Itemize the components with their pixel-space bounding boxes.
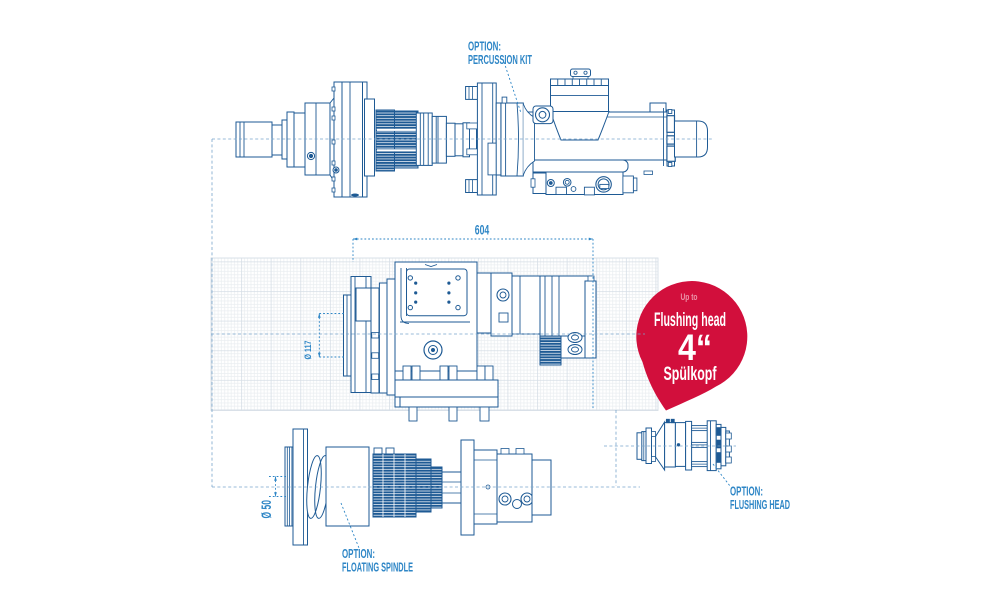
svg-text:Ø 50: Ø 50 xyxy=(259,500,274,519)
svg-text:604: 604 xyxy=(475,222,490,238)
svg-text:FLOATING SPINDLE: FLOATING SPINDLE xyxy=(342,560,413,575)
svg-text:Spülkopf: Spülkopf xyxy=(664,364,717,385)
svg-text:FLUSHING HEAD: FLUSHING HEAD xyxy=(730,497,790,512)
svg-text:Ø 117: Ø 117 xyxy=(303,341,313,360)
svg-text:PERCUSSION KIT: PERCUSSION KIT xyxy=(468,52,532,67)
svg-text:4“: 4“ xyxy=(678,327,712,368)
svg-text:Up to: Up to xyxy=(681,292,698,302)
